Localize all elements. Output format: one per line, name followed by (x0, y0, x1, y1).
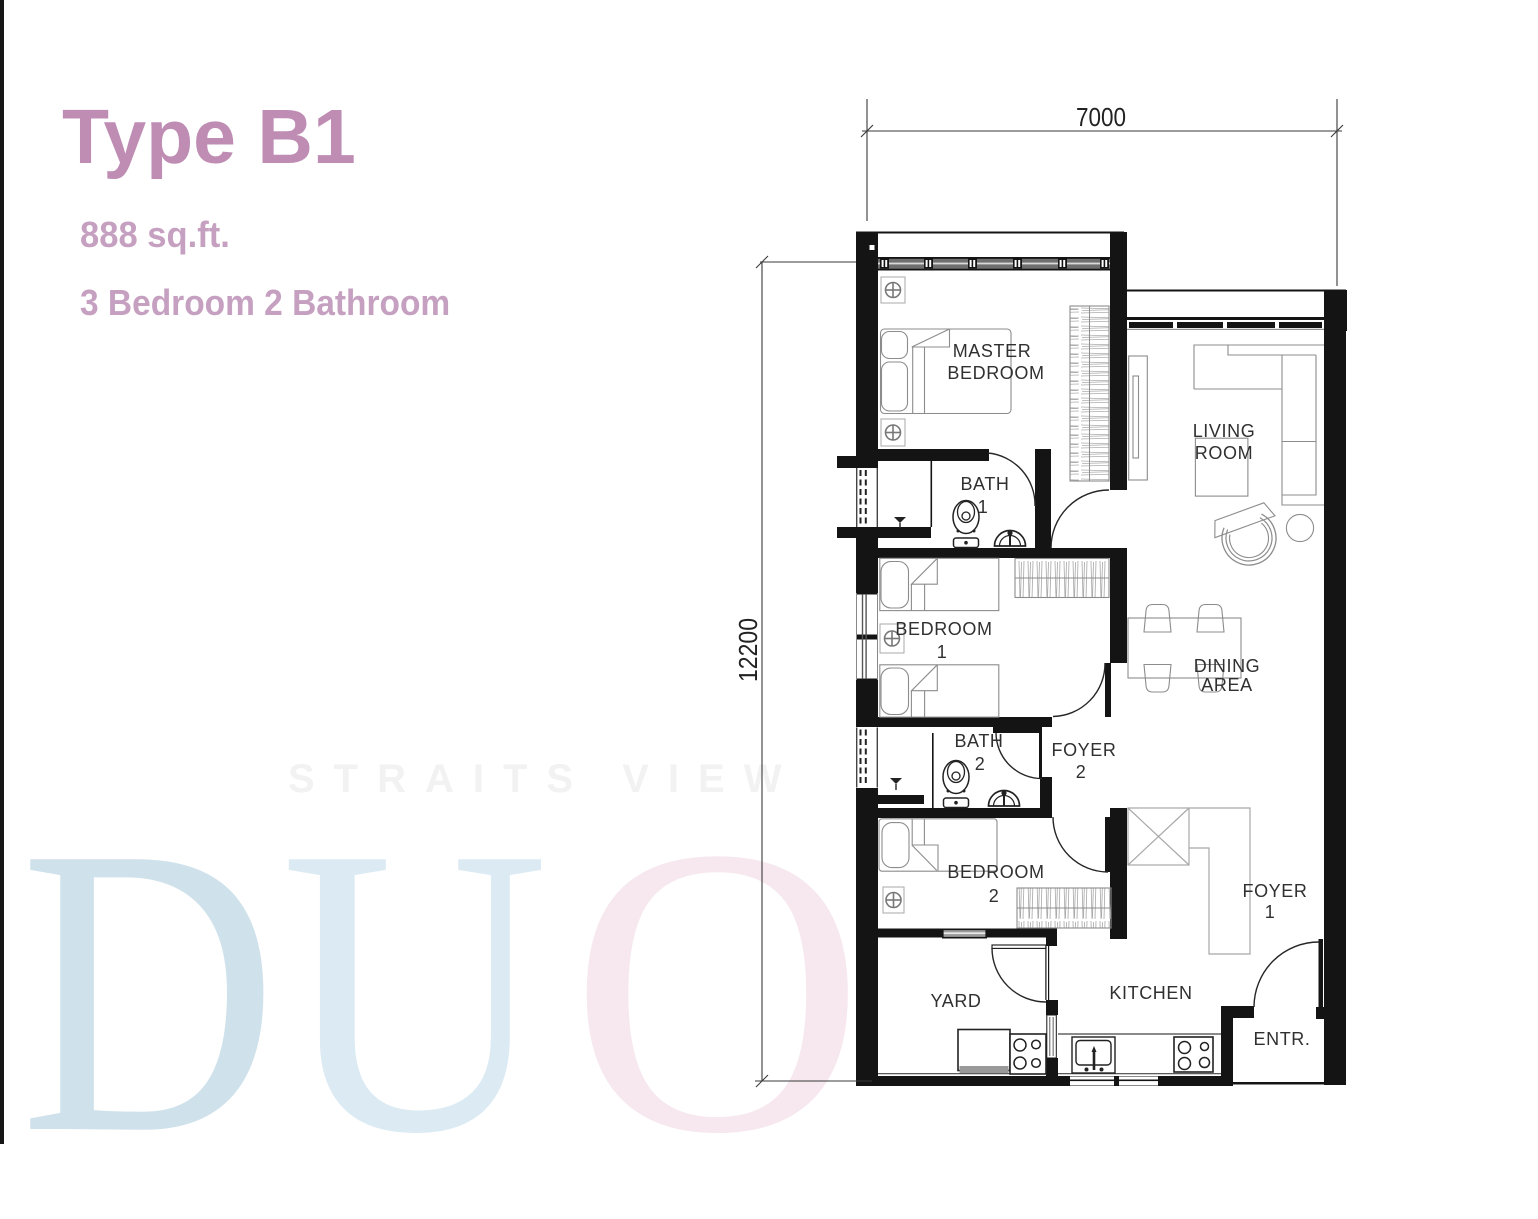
svg-text:FOYER: FOYER (1242, 881, 1307, 901)
svg-text:FOYER: FOYER (1051, 740, 1116, 760)
svg-text:BEDROOM: BEDROOM (947, 862, 1044, 882)
svg-text:BEDROOM: BEDROOM (895, 619, 992, 639)
svg-text:1: 1 (978, 497, 989, 517)
svg-text:7000: 7000 (1076, 102, 1126, 132)
svg-text:BATH: BATH (954, 731, 1003, 751)
svg-text:DINING: DINING (1194, 656, 1261, 676)
svg-text:AREA: AREA (1201, 675, 1252, 695)
svg-text:MASTER: MASTER (953, 341, 1032, 361)
svg-text:BEDROOM: BEDROOM (947, 363, 1044, 383)
svg-text:BATH: BATH (960, 474, 1009, 494)
svg-text:1: 1 (1265, 902, 1276, 922)
svg-text:12200: 12200 (733, 618, 763, 682)
svg-text:YARD: YARD (930, 991, 981, 1011)
svg-text:2: 2 (989, 886, 1000, 906)
svg-text:2: 2 (975, 754, 986, 774)
svg-text:LIVING: LIVING (1193, 421, 1256, 441)
svg-text:2: 2 (1076, 762, 1087, 782)
svg-text:1: 1 (937, 642, 948, 662)
svg-text:ROOM: ROOM (1195, 443, 1253, 463)
svg-text:ENTR.: ENTR. (1254, 1029, 1311, 1049)
svg-text:KITCHEN: KITCHEN (1109, 983, 1192, 1003)
